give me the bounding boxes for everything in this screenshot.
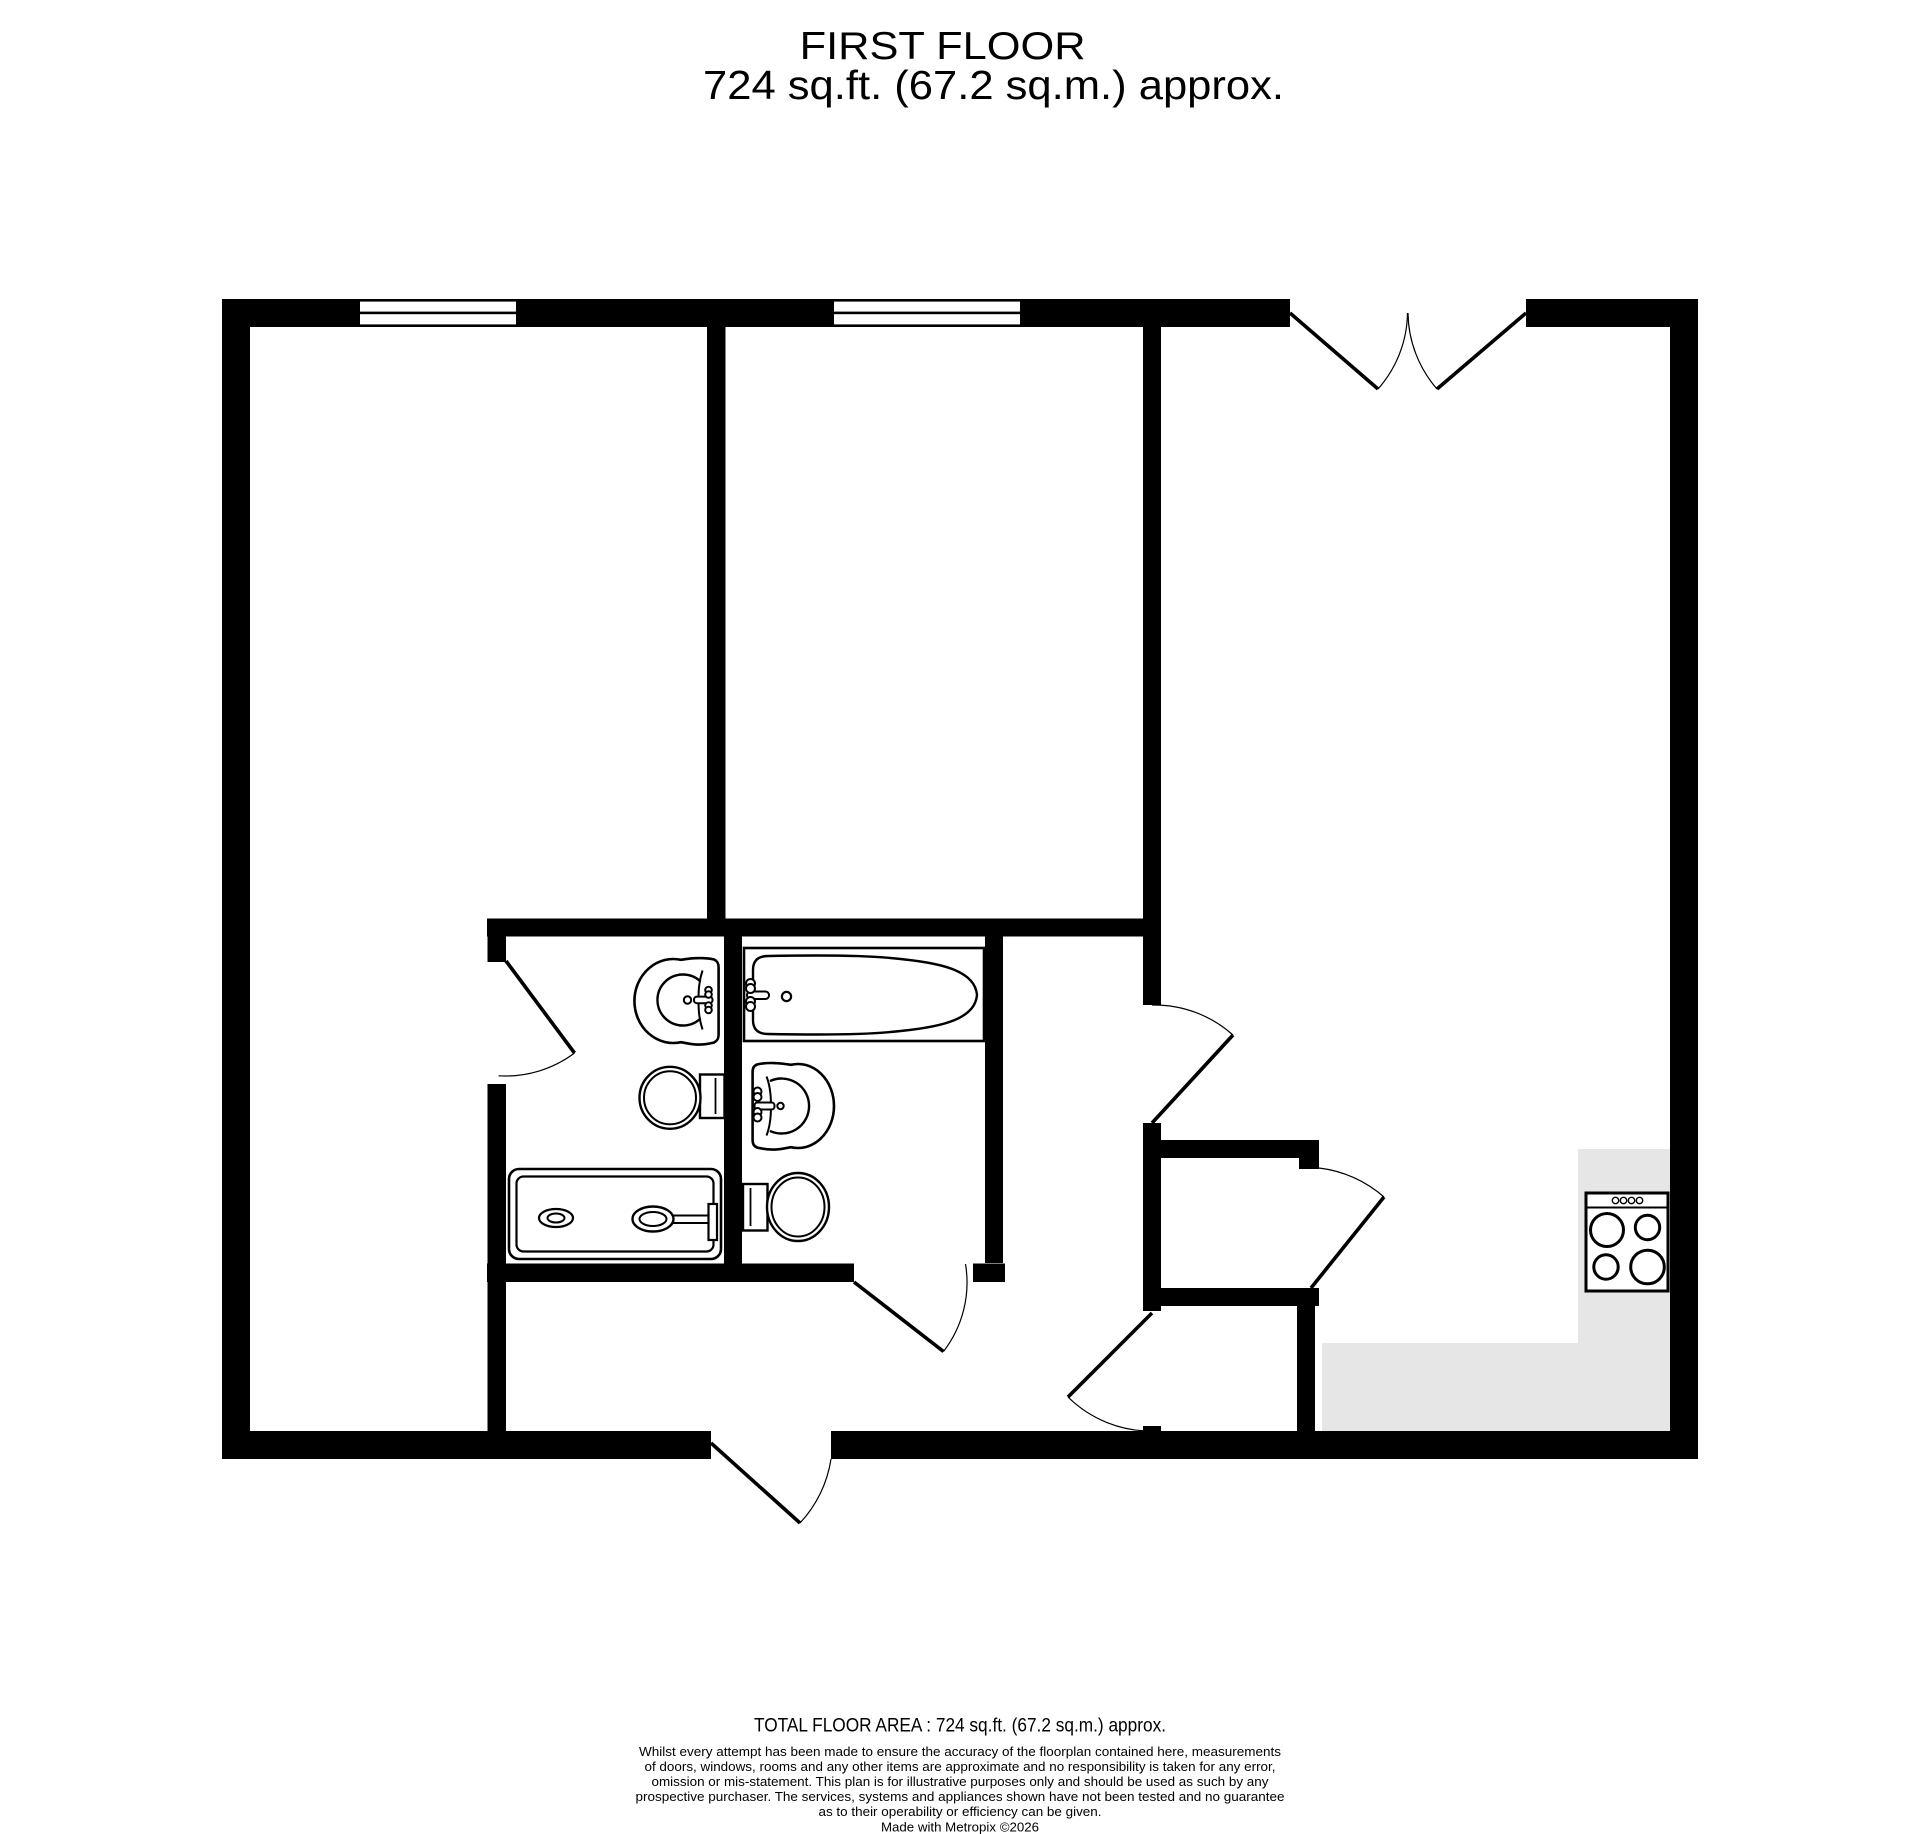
svg-text:of doors, windows, rooms and a: of doors, windows, rooms and any other i… [645, 1759, 1276, 1774]
svg-text:Whilst every attempt has been: Whilst every attempt has been made to en… [639, 1744, 1282, 1759]
svg-text:Made with Metropix ©2026: Made with Metropix ©2026 [881, 1820, 1039, 1834]
svg-text:prospective purchaser. The ser: prospective purchaser. The services, sys… [636, 1789, 1285, 1804]
svg-text:TOTAL FLOOR AREA : 724 sq.ft.: TOTAL FLOOR AREA : 724 sq.ft. (67.2 sq.m… [754, 1716, 1166, 1737]
svg-text:724 sq.ft. (67.2 sq.m.) approx: 724 sq.ft. (67.2 sq.m.) approx. [703, 62, 1284, 108]
svg-text:as to their operability or eff: as to their operability or efficiency ca… [819, 1804, 1102, 1819]
svg-text:omission or mis-statement. Thi: omission or mis-statement. This plan is … [652, 1774, 1270, 1789]
